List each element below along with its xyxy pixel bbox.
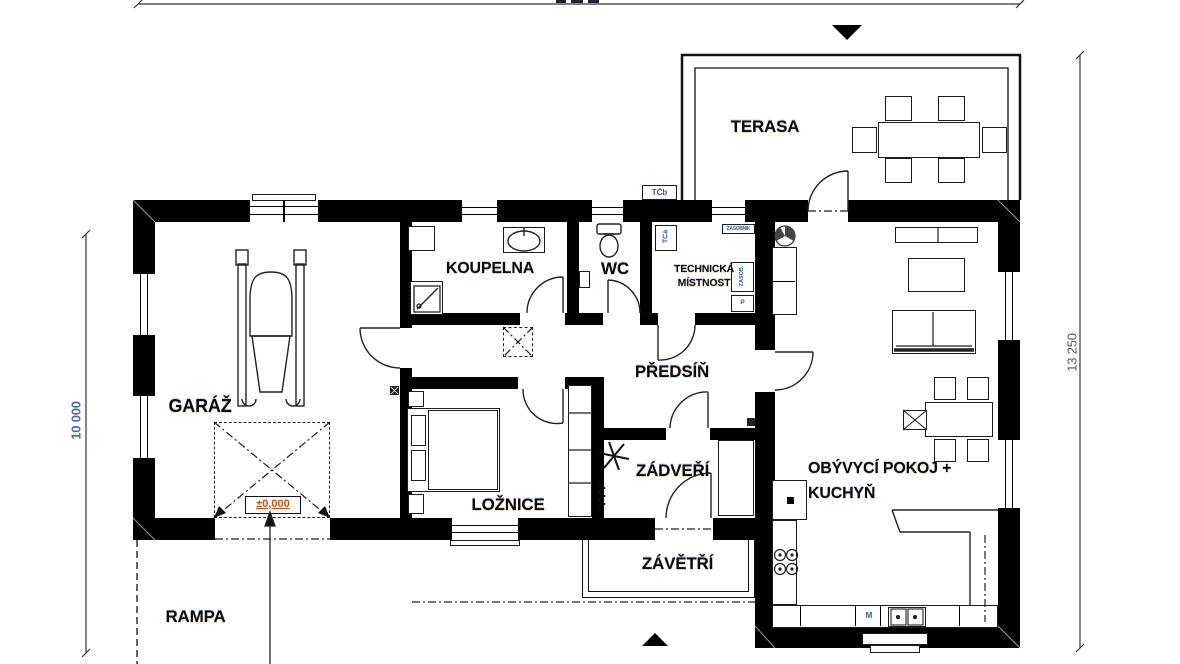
nightstand xyxy=(408,391,424,407)
sofa xyxy=(892,310,976,354)
room-label-terrace: TERASA xyxy=(720,117,810,137)
wc-basin xyxy=(579,271,590,288)
wall-bath-wc xyxy=(567,222,579,313)
door-opening-wc xyxy=(603,313,640,325)
terrace-chair xyxy=(938,158,965,183)
kitchen-sink xyxy=(888,607,926,627)
window-tech-top xyxy=(712,200,745,222)
main-door-opening xyxy=(655,518,713,540)
dining-chair xyxy=(967,439,989,462)
window-wc-top xyxy=(592,200,623,222)
car xyxy=(236,250,306,406)
room-label-porch: ZÁVĚTŘÍ xyxy=(630,554,725,574)
window-bedroom-bottom xyxy=(452,518,518,540)
chimney xyxy=(503,327,533,357)
kitchen-counter-left xyxy=(772,520,797,605)
terrace-chair xyxy=(885,96,912,121)
door-opening-bedroom xyxy=(518,377,565,389)
level-marker: ±0,000 xyxy=(245,496,301,514)
entry-closet xyxy=(718,440,754,516)
entry-arrow-icon xyxy=(642,633,668,646)
window-sill xyxy=(450,540,520,546)
kitchen-counter-bottom xyxy=(772,605,998,628)
high-chair xyxy=(903,410,927,430)
window-garage-top xyxy=(250,200,318,222)
tall-cabinet xyxy=(772,247,797,315)
heat-pump-indoor-label: TČa xyxy=(663,223,670,251)
heat-pump-outdoor-label: TČb xyxy=(643,188,676,197)
wall-wc-tech xyxy=(640,222,652,313)
room-label-living-1: OBÝVYCÍ POKOJ + xyxy=(808,460,1003,478)
door-opening-garage xyxy=(400,328,412,368)
north-arrow-icon xyxy=(832,25,862,40)
wall-bedroom-right xyxy=(592,389,604,518)
wall-living-right xyxy=(998,200,1020,648)
door-opening-living xyxy=(755,350,775,392)
shower xyxy=(410,281,443,315)
wall-bath-bottom xyxy=(412,313,755,325)
fireplace xyxy=(772,480,807,520)
window-garage-left-2 xyxy=(133,396,155,458)
garage-door-opening xyxy=(215,518,330,540)
room-label-hall: PŘEDSÍŇ xyxy=(612,362,732,382)
terrace-chair xyxy=(885,158,912,183)
bath-cabinet xyxy=(408,226,435,251)
room-label-garage: GARÁŽ xyxy=(160,396,240,417)
outdoor-step xyxy=(870,645,920,653)
door-opening-tech xyxy=(658,313,695,325)
dimension-right: 13 250 xyxy=(1065,325,1080,381)
pillow xyxy=(411,450,426,481)
room-label-entry: ZÁDVEŘÍ xyxy=(625,461,720,481)
window-garage-left-1 xyxy=(133,274,155,335)
boiler-symbol xyxy=(775,226,795,246)
wardrobe xyxy=(568,385,592,517)
door-opening-hall xyxy=(666,428,710,440)
floor-plan: TČb ±0,000 xyxy=(0,0,1180,664)
terrace-chair xyxy=(982,127,1007,153)
nightstand xyxy=(408,494,424,514)
dining-chair xyxy=(934,439,956,462)
window-bath-top xyxy=(462,200,497,222)
room-label-living-2: KUCHYŇ xyxy=(808,485,1003,503)
outdoor-step xyxy=(862,633,928,645)
washbasin xyxy=(503,227,545,253)
room-label-bathroom: KOUPELNA xyxy=(432,260,548,278)
toilet xyxy=(597,224,621,257)
terrace-table xyxy=(878,122,980,158)
bed-mattress xyxy=(428,410,498,490)
door-opening-bath xyxy=(520,313,565,325)
heat-pump-outdoor-box: TČb xyxy=(642,185,677,200)
coffee-table xyxy=(908,258,965,292)
tank-vertical-label: ZÁSOB. xyxy=(739,262,745,290)
kitchen-peninsula xyxy=(892,510,998,605)
sideboard xyxy=(895,227,978,243)
pillow xyxy=(411,415,426,446)
window-living-right-1 xyxy=(998,272,1020,340)
door-opening-terrace xyxy=(808,200,848,222)
tank-label: ZÁSOBNÍK xyxy=(723,226,754,232)
room-label-wc: WC xyxy=(594,259,636,279)
terrace-chair xyxy=(852,127,877,153)
room-label-bedroom: LOŽNICE xyxy=(462,495,554,515)
window-sill xyxy=(252,194,316,201)
dishwasher-label: M xyxy=(857,611,881,620)
wall-left xyxy=(133,200,155,540)
dimension-left: 10 000 xyxy=(69,393,84,449)
washer-label: P xyxy=(731,299,754,306)
dining-chair xyxy=(934,377,956,400)
dining-table xyxy=(925,402,993,437)
dining-chair xyxy=(967,377,989,400)
room-label-ramp: RAMPA xyxy=(153,607,238,627)
terrace-chair xyxy=(938,96,965,121)
